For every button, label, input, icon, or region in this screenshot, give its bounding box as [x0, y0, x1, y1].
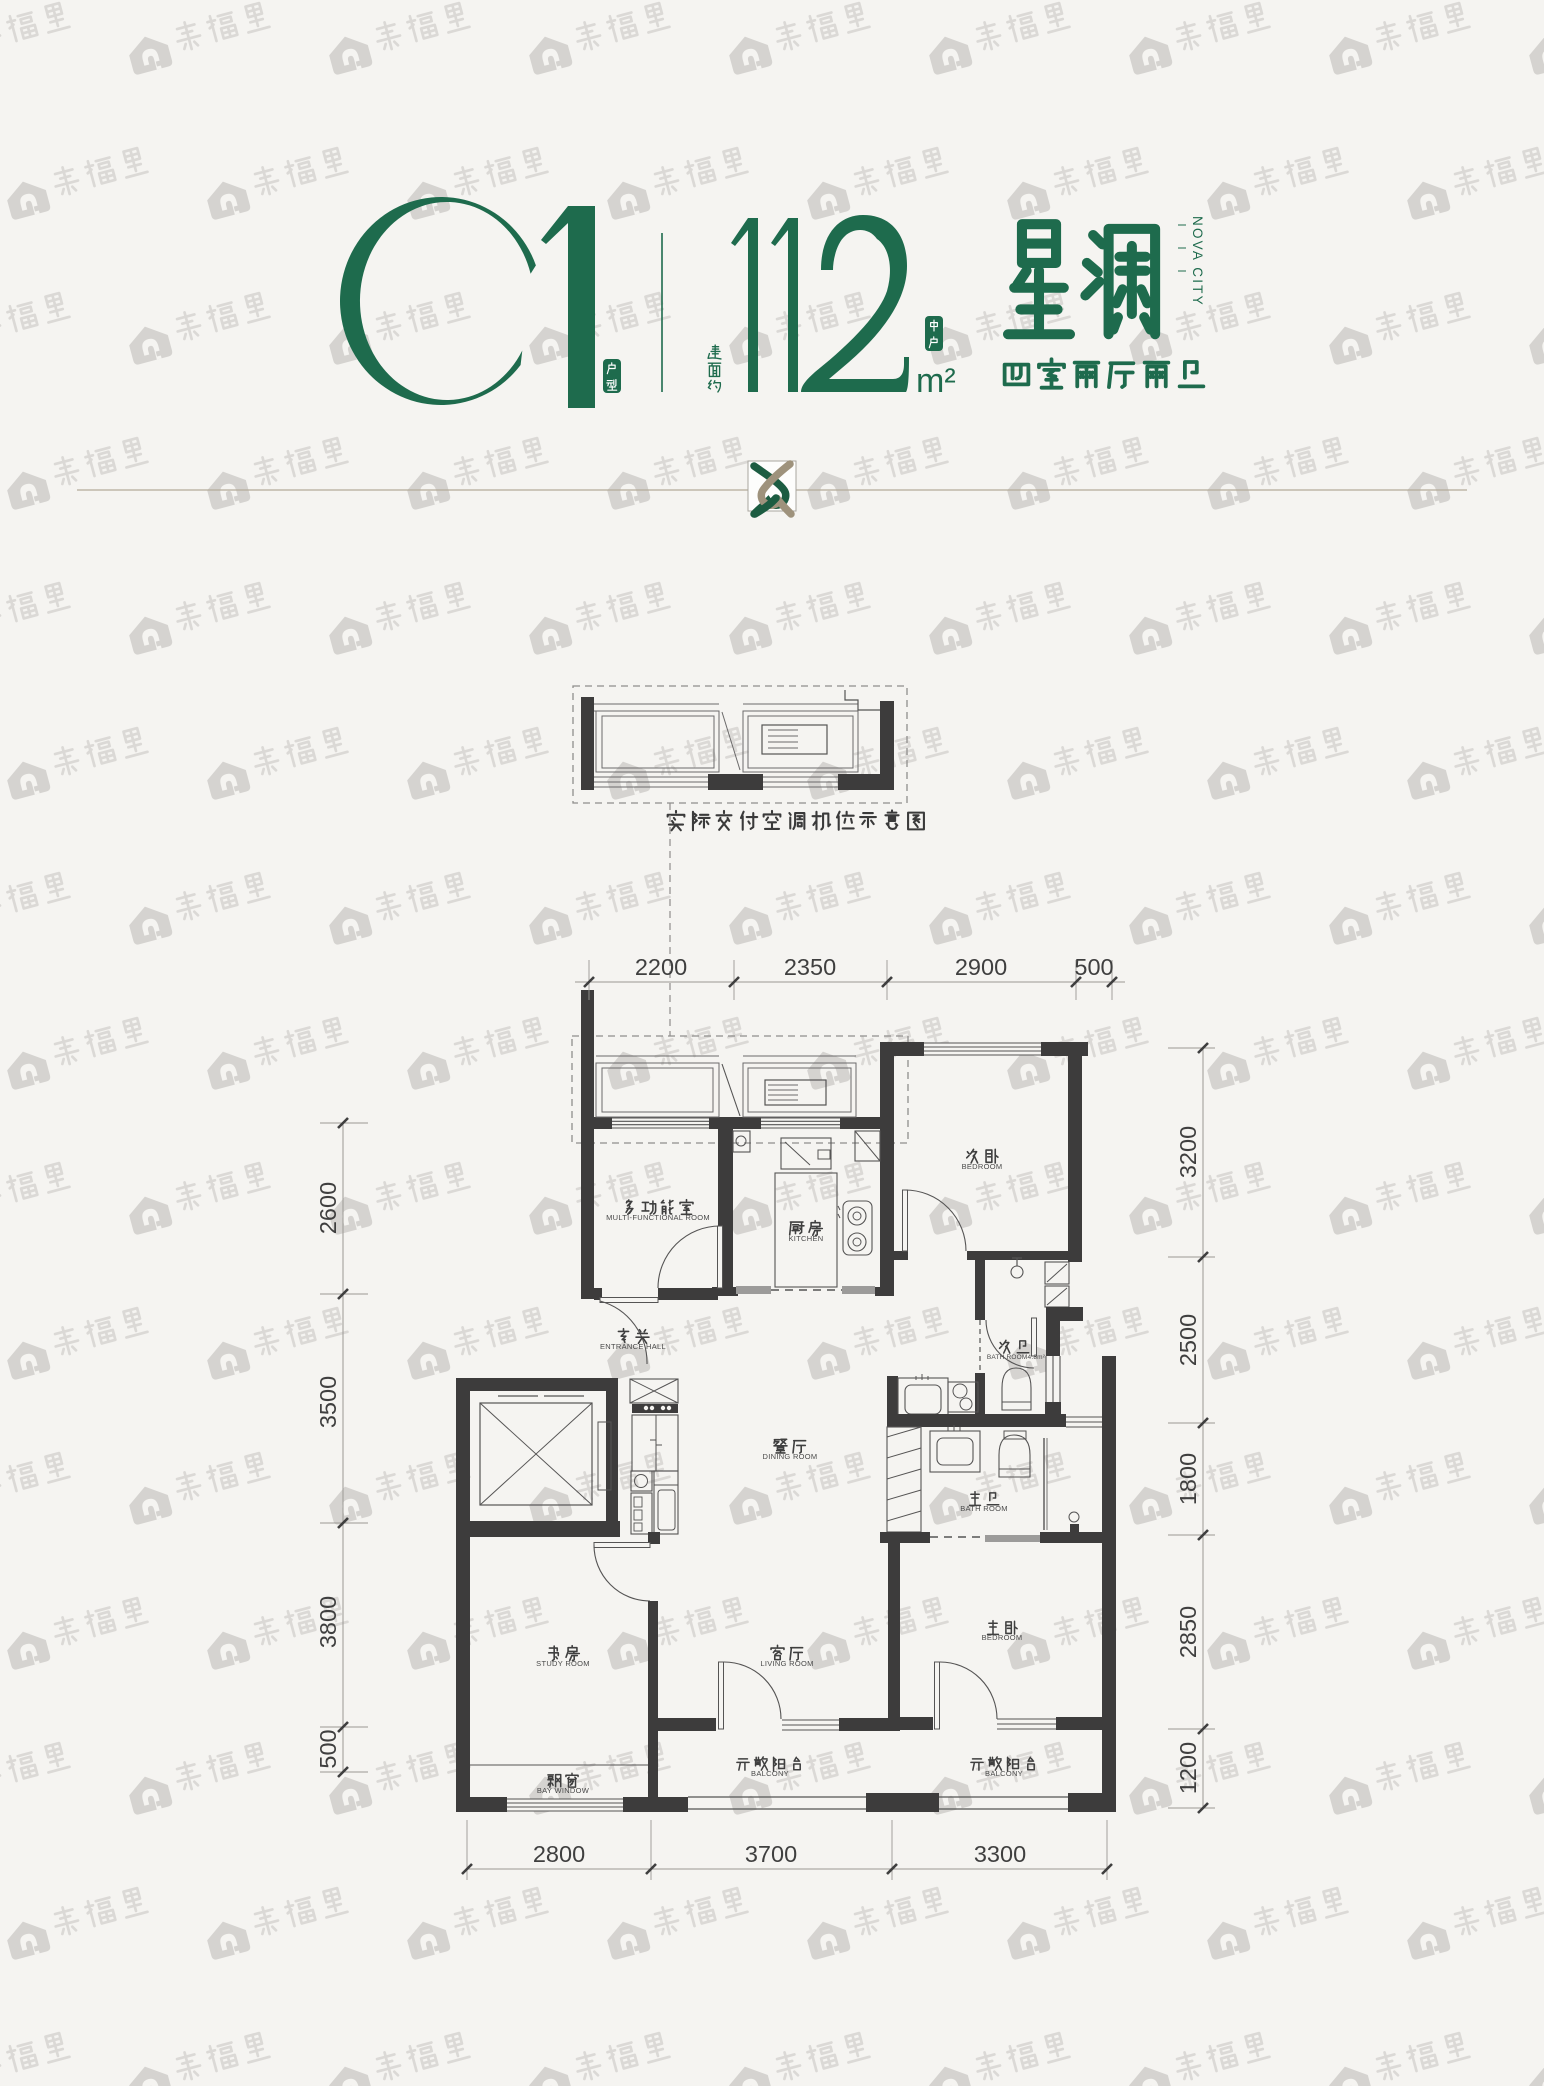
svg-text:BALCONY: BALCONY [985, 1769, 1023, 1778]
svg-text:STUDY ROOM: STUDY ROOM [536, 1659, 590, 1668]
svg-text:3200: 3200 [1175, 1126, 1201, 1178]
svg-text:2850: 2850 [1175, 1606, 1201, 1658]
svg-text:MULTI-FUNCTIONAL ROOM: MULTI-FUNCTIONAL ROOM [606, 1213, 710, 1222]
svg-text:2800: 2800 [533, 1841, 585, 1867]
svg-text:2600: 2600 [315, 1182, 341, 1234]
svg-text:2350: 2350 [784, 954, 836, 980]
svg-text:BATH ROOM: BATH ROOM [960, 1504, 1008, 1513]
svg-text:BAY WINDOW: BAY WINDOW [537, 1786, 590, 1795]
svg-text:3800: 3800 [315, 1596, 341, 1648]
svg-text:BATH ROOM4.8m²: BATH ROOM4.8m² [987, 1354, 1046, 1361]
svg-text:BEDROOM: BEDROOM [982, 1633, 1023, 1642]
svg-text:3300: 3300 [974, 1841, 1026, 1867]
svg-text:BALCONY: BALCONY [751, 1769, 789, 1778]
svg-text:2200: 2200 [635, 954, 687, 980]
svg-text:1800: 1800 [1175, 1453, 1201, 1505]
svg-text:DINING ROOM: DINING ROOM [763, 1452, 818, 1461]
svg-text:500: 500 [1074, 954, 1113, 980]
svg-text:3500: 3500 [315, 1376, 341, 1428]
svg-text:2500: 2500 [1175, 1314, 1201, 1366]
svg-text:LIVING ROOM: LIVING ROOM [760, 1659, 813, 1668]
svg-text:3700: 3700 [745, 1841, 797, 1867]
svg-text:NOVA CITY: NOVA CITY [1190, 216, 1205, 307]
svg-text:m²: m² [916, 362, 956, 400]
svg-text:ENTRANCE HALL: ENTRANCE HALL [600, 1342, 666, 1351]
svg-text:2900: 2900 [955, 954, 1007, 980]
svg-text:1200: 1200 [1175, 1742, 1201, 1794]
svg-text:KITCHEN: KITCHEN [788, 1234, 823, 1243]
svg-text:BEDROOM: BEDROOM [962, 1162, 1003, 1171]
svg-text:500: 500 [315, 1729, 341, 1768]
